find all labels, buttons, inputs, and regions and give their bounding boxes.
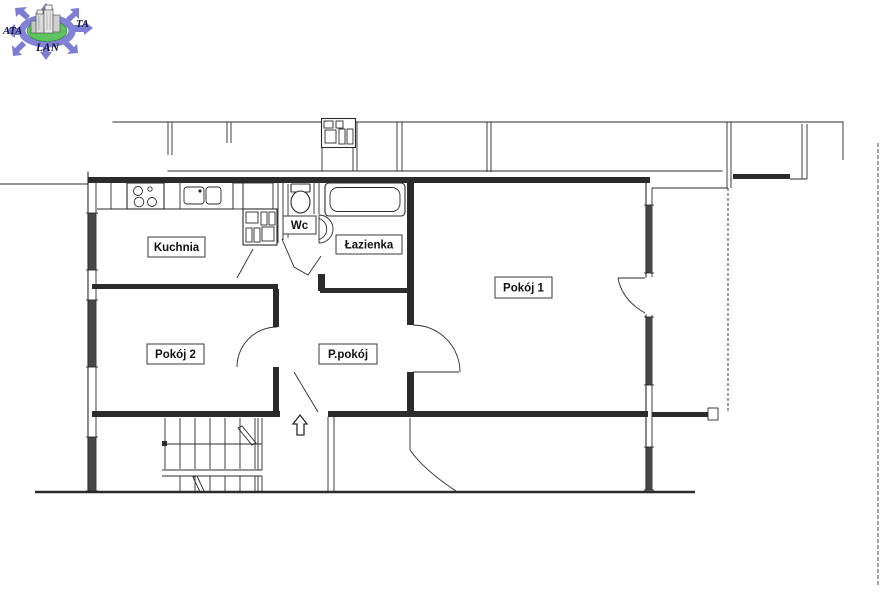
room-label-kuchnia-text: Kuchnia (154, 242, 200, 254)
toilet-fixture (291, 184, 310, 213)
floorplan-drawing: ATA TA LAN (0, 0, 885, 600)
room-label-pokoj1: Pokój 1 (495, 277, 552, 298)
staircase (162, 418, 262, 492)
room-label-lazienka: Łazienka (336, 235, 402, 254)
kitchen-sink-fixture (184, 187, 221, 204)
kitchen-cabinet-block (243, 209, 277, 245)
door-room1 (413, 325, 460, 372)
door-balcony (618, 278, 645, 313)
door-wc (282, 239, 308, 275)
stairs-direction-arrow-upper (238, 426, 256, 445)
stove-fixture (127, 183, 164, 209)
agency-logo: ATA TA LAN (2, 3, 93, 60)
door-neighbor-below (410, 418, 456, 491)
stairs-lower-flight (180, 476, 262, 492)
room-label-wc: Wc (283, 216, 316, 234)
logo-text-right: TA (76, 19, 89, 30)
scanned-floorplan-page: ATA TA LAN (0, 0, 885, 600)
room-label-pokoj1-text: Pokój 1 (503, 283, 545, 295)
door-kitchen (237, 249, 253, 278)
room-label-ppokoj: P.pokój (319, 344, 377, 364)
utility-shaft (322, 119, 356, 172)
washbasin-fixture (319, 215, 333, 243)
door-swings (237, 239, 645, 491)
room-label-ppokoj-text: P.pokój (328, 349, 368, 361)
balcony (652, 188, 728, 412)
door-room2 (237, 327, 277, 367)
door-bathroom (308, 256, 321, 275)
room-label-pokoj2: Pokój 2 (147, 344, 204, 364)
logo-text-bottom: LAN (35, 42, 60, 54)
door-entrance (294, 372, 318, 412)
stairs-upper-flight (165, 418, 262, 470)
logo-text-left: ATA (2, 26, 22, 37)
room-label-kuchnia: Kuchnia (148, 237, 205, 257)
room-label-pokoj2-text: Pokój 2 (155, 349, 196, 361)
room-label-lazienka-text: Łazienka (345, 240, 394, 252)
bathtub-fixture (325, 183, 405, 216)
room-label-wc-text: Wc (291, 220, 309, 232)
stair-newel-post (162, 441, 167, 446)
entrance-arrow-icon (293, 415, 307, 435)
kitchen-fixtures (97, 183, 277, 245)
